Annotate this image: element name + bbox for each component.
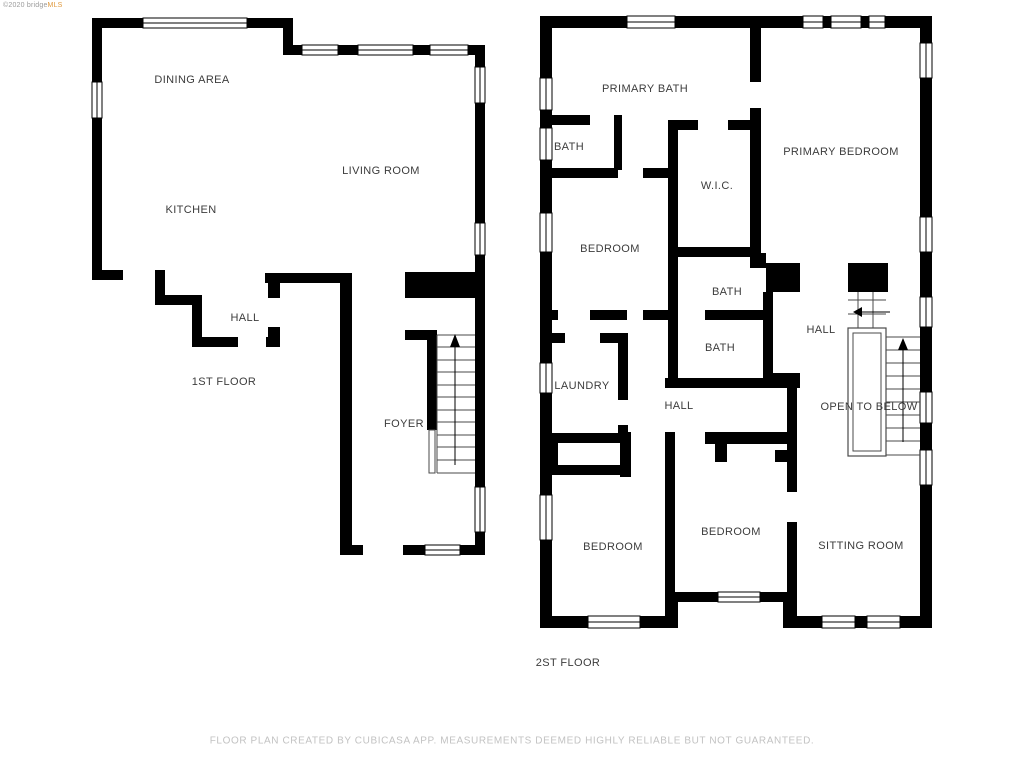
room-label-bath-upper: BATH (554, 141, 584, 153)
floor2-staircase (848, 292, 920, 456)
room-label-living-room: LIVING ROOM (342, 165, 420, 177)
room-label-kitchen: KITCHEN (165, 204, 216, 216)
room-label-bedroom-bottom-left: BEDROOM (583, 541, 643, 553)
room-label-dining-area: DINING AREA (154, 74, 229, 86)
room-label-bedroom-left: BEDROOM (580, 243, 640, 255)
room-label-open-to-below: OPEN TO BELOW (820, 401, 917, 413)
room-label-laundry: LAUNDRY (554, 380, 609, 392)
room-label-hall-right: HALL (806, 324, 835, 336)
room-label-bedroom-bottom-center: BEDROOM (701, 526, 761, 538)
room-label-bath-mid: BATH (712, 286, 742, 298)
disclaimer-text: FLOOR PLAN CREATED BY CUBICASA APP. MEAS… (210, 736, 815, 747)
room-label-foyer: FOYER (384, 418, 424, 430)
room-label-wic: W.I.C. (701, 180, 733, 192)
room-label-sitting-room: SITTING ROOM (818, 540, 903, 552)
floorplan-page: ©2020 bridgeMLS DINING AREA LIVING ROOM … (0, 0, 1024, 768)
floorplan-canvas (0, 0, 1024, 768)
watermark-gray-text: ©2020 bridge (3, 2, 48, 9)
floor2-title: 2ST FLOOR (536, 657, 601, 669)
watermark-accent-text: MLS (48, 2, 63, 9)
floor1-title: 1ST FLOOR (192, 376, 257, 388)
room-label-primary-bath: PRIMARY BATH (602, 83, 688, 95)
floor1-walls (92, 18, 485, 555)
room-label-primary-bedroom: PRIMARY BEDROOM (783, 146, 899, 158)
room-label-hall-center: HALL (664, 400, 693, 412)
room-label-hall-floor1: HALL (230, 312, 259, 324)
floor1-stairs-direction-arrow (450, 334, 460, 465)
room-label-bath-lower: BATH (705, 342, 735, 354)
watermark-bridgemls: ©2020 bridgeMLS (3, 2, 63, 9)
